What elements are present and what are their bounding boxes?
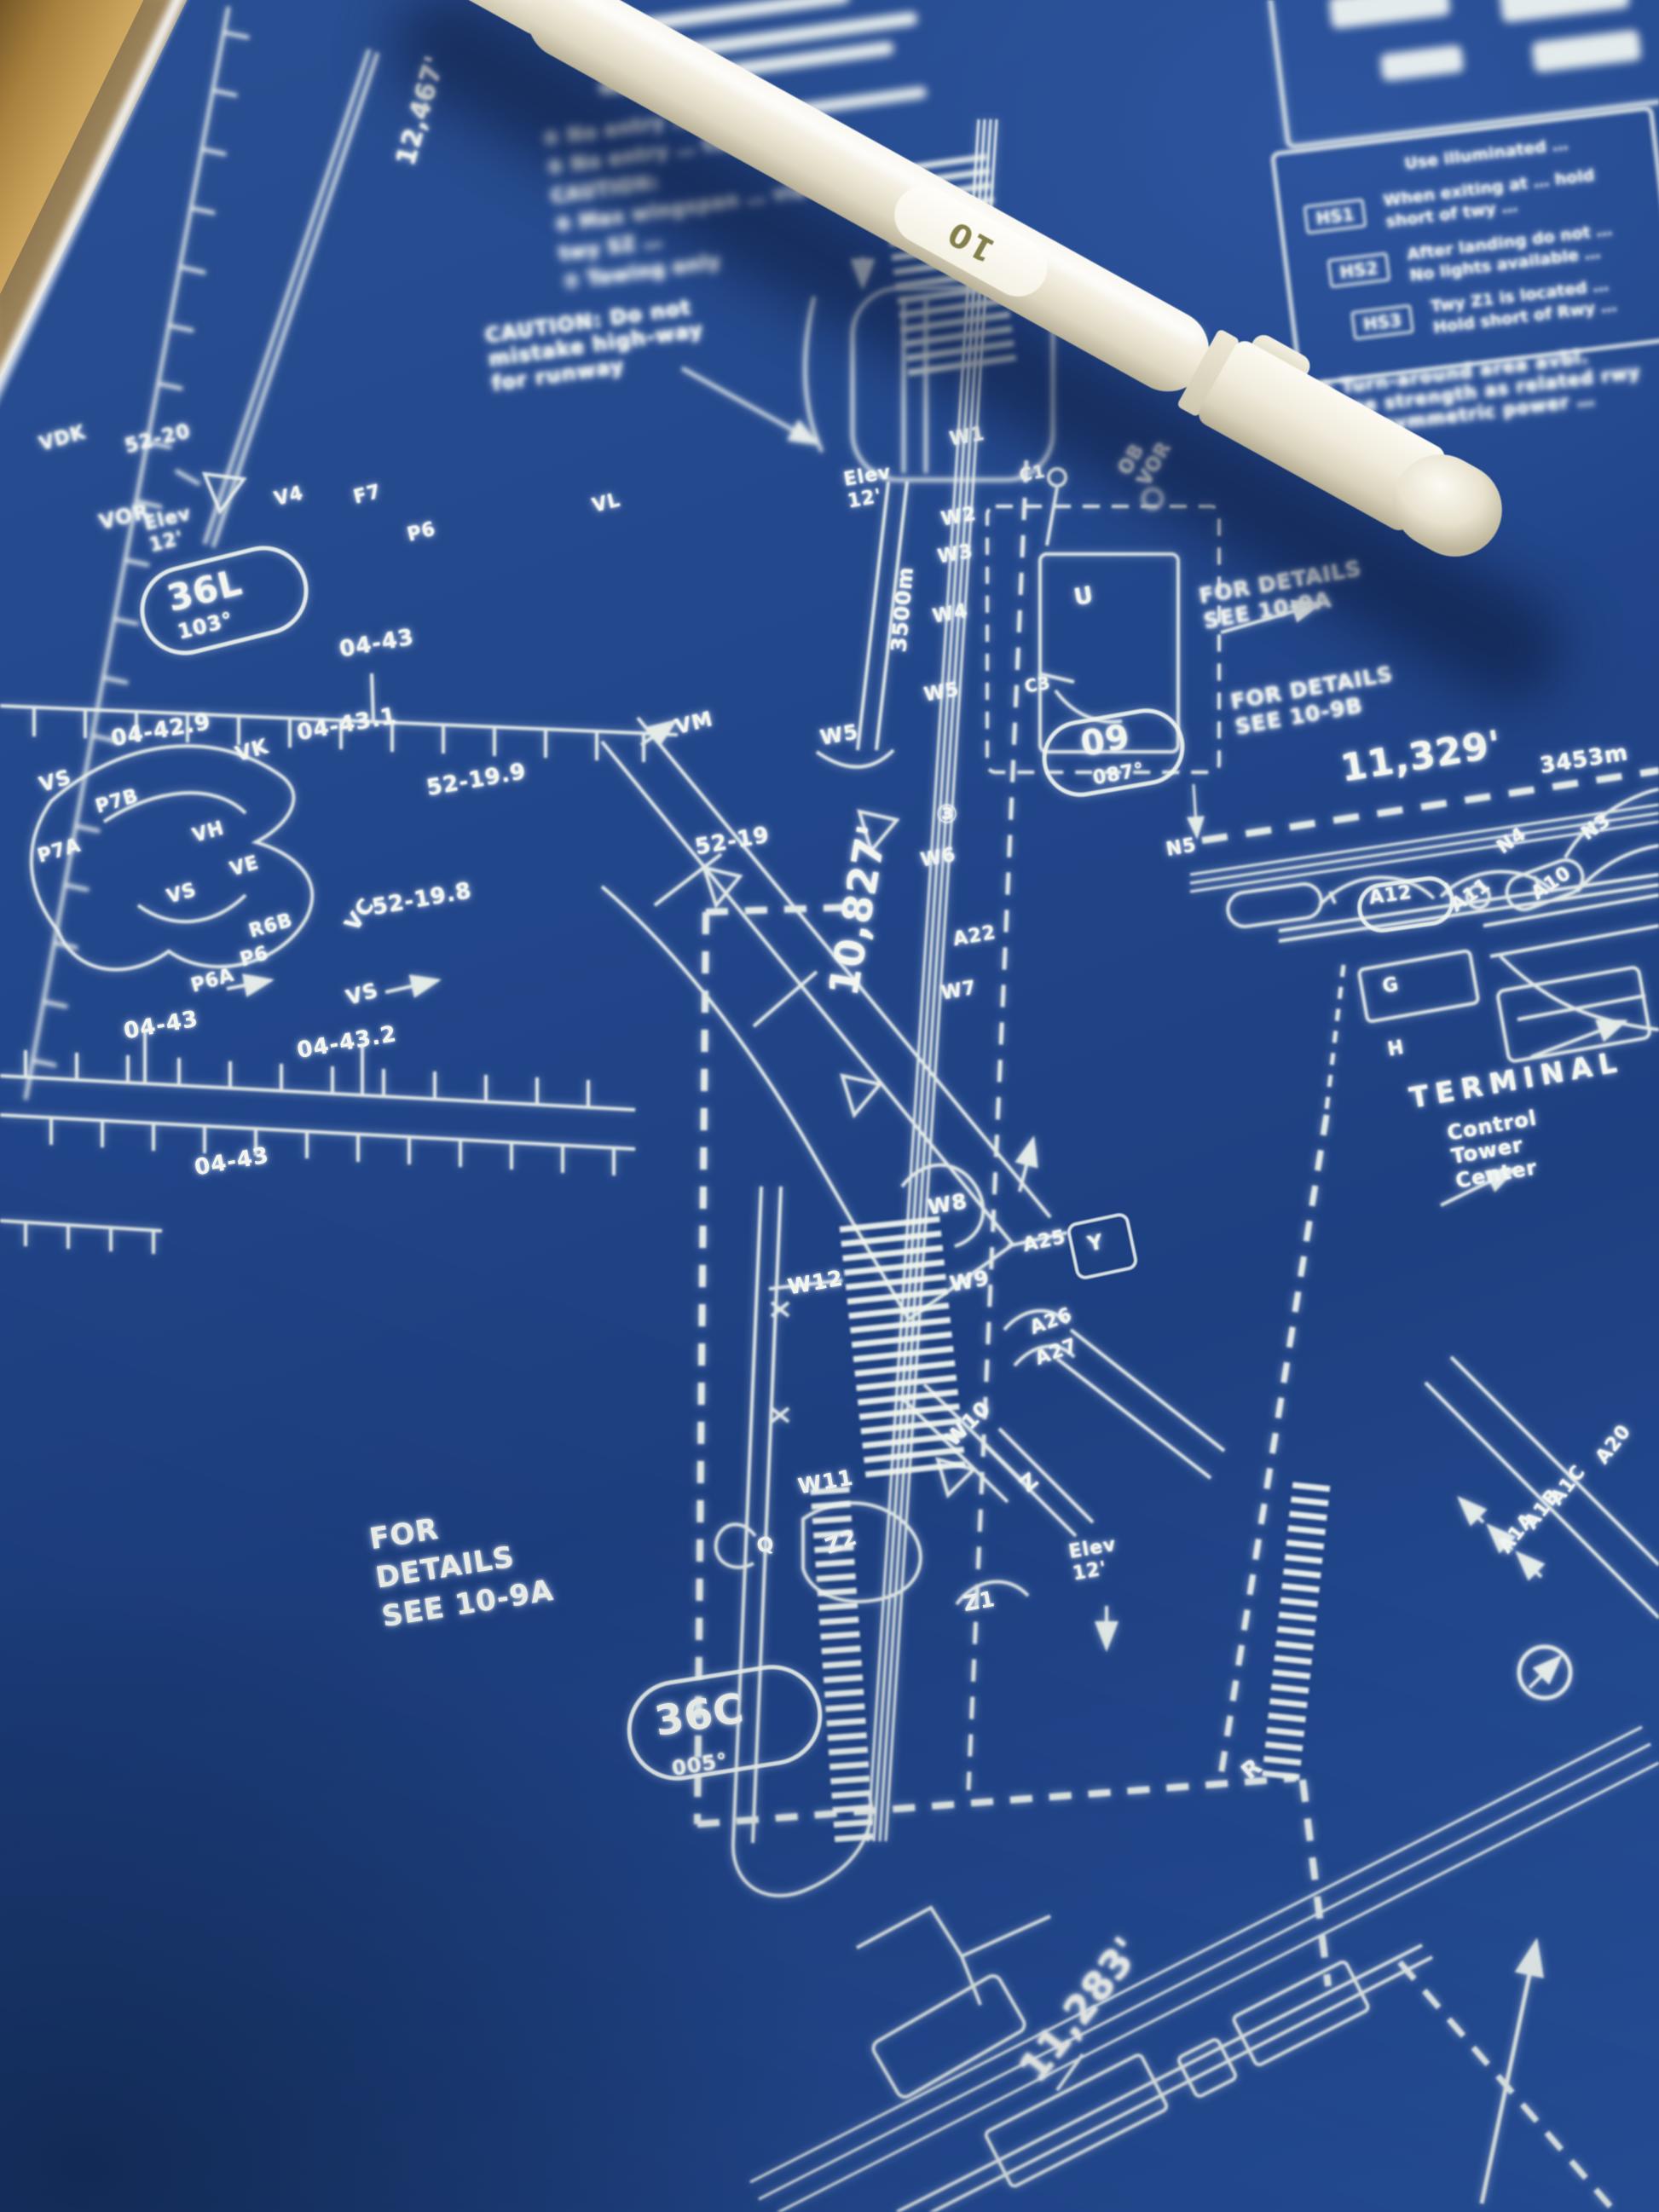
control-tower-label: Control Tower Center <box>1445 1106 1546 1193</box>
elev-mid: Elev 12' <box>842 462 897 514</box>
hs2-text: After landing do not … No lights availab… <box>1406 219 1616 286</box>
hs3-text: Twy Z1 is located … Hold short of Rwy … <box>1430 274 1618 338</box>
hs2-tag: HS2 <box>1327 252 1391 288</box>
twy-q: Q <box>755 1533 777 1558</box>
hs3-tag: HS3 <box>1350 304 1414 340</box>
pen-size-marking: 10 <box>940 213 1001 269</box>
elev-bottom: Elev 12' <box>1067 1534 1122 1586</box>
photo-of-blueprint-airport-chart: Use illuminated … HS1 When exiting at … … <box>0 0 1659 2212</box>
spot-3: ③ <box>936 800 958 829</box>
hs1-tag: HS1 <box>1303 199 1367 234</box>
rwy09-id: 09 <box>1078 717 1133 765</box>
hs1-text: When exiting at … hold short of twy … <box>1382 165 1598 233</box>
hotspot-table-header: Use illuminated … <box>1403 134 1569 175</box>
